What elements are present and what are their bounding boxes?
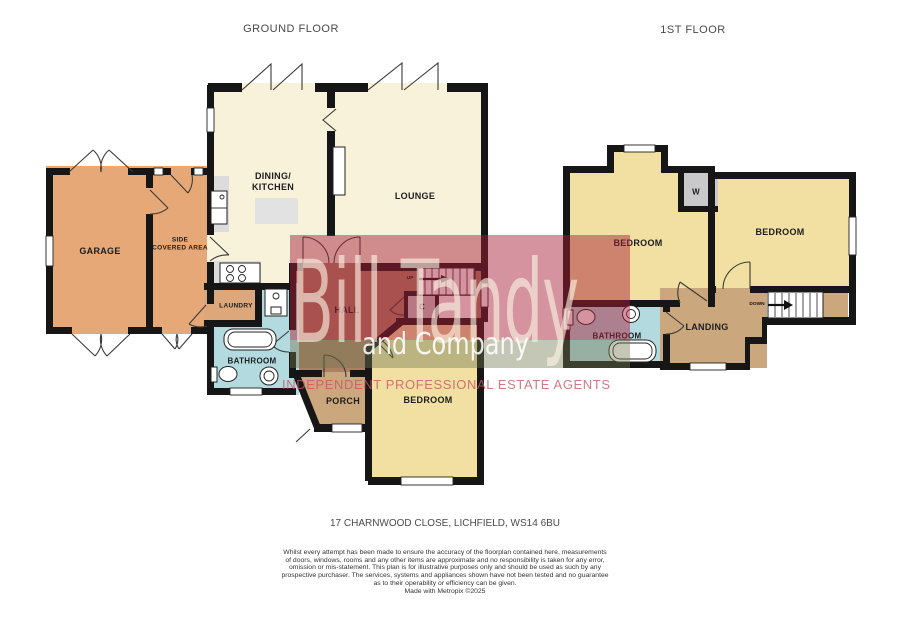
label-lounge: LOUNGE xyxy=(395,191,435,201)
label-landing: LANDING xyxy=(685,322,728,332)
label-bedroom-ground: BEDROOM xyxy=(403,395,452,405)
disclaimer-line: omission or mis-statement. This plan is … xyxy=(245,564,645,572)
label-bedroom-first-right: BEDROOM xyxy=(755,227,804,237)
first-floor-heading: 1ST FLOOR xyxy=(660,24,725,36)
label-porch: PORCH xyxy=(326,396,360,406)
disclaimer-line: Whilst every attempt has been made to en… xyxy=(245,549,645,557)
watermark-brand-sub: and Company xyxy=(362,330,529,360)
room-stair-pocket xyxy=(822,292,848,318)
label-down: DOWN xyxy=(749,302,764,307)
toilet-ground-tank xyxy=(211,367,217,382)
label-dining-line1: DINING/ xyxy=(255,171,291,181)
label-side-line1: SIDE xyxy=(172,237,188,244)
label-laundry: LAUNDRY xyxy=(219,303,253,310)
label-bathroom-ground: BATHROOM xyxy=(228,357,277,366)
toilet-ground xyxy=(219,367,237,382)
ground-floor-heading: GROUND FLOOR xyxy=(243,23,339,35)
kitchen-sink xyxy=(211,191,227,224)
floorplan-page: GROUND FLOOR 1ST FLOOR GARAGE SIDE COVER… xyxy=(0,0,900,625)
disclaimer-line: as to their operability or efficiency ca… xyxy=(245,580,645,588)
disclaimer-line: Made with Metropix ©2025 xyxy=(245,588,645,596)
label-wardrobe: W xyxy=(692,188,700,197)
label-dining-line2: KITCHEN xyxy=(252,182,294,192)
fireplace xyxy=(333,147,345,195)
label-side-line2: COVERED AREA xyxy=(152,245,208,252)
disclaimer-line: prospective purchaser. The services, sys… xyxy=(245,572,645,580)
property-address: 17 CHARNWOOD CLOSE, LICHFIELD, WS14 6BU xyxy=(245,518,645,529)
sink-ground xyxy=(260,367,278,385)
disclaimer: Whilst every attempt has been made to en… xyxy=(245,549,645,595)
disclaimer-line: of doors, windows, rooms and any other i… xyxy=(245,557,645,565)
kitchen-island xyxy=(255,198,298,224)
label-garage: GARAGE xyxy=(79,246,120,256)
watermark-tagline: INDEPENDENT PROFESSIONAL ESTATE AGENTS xyxy=(282,377,611,392)
